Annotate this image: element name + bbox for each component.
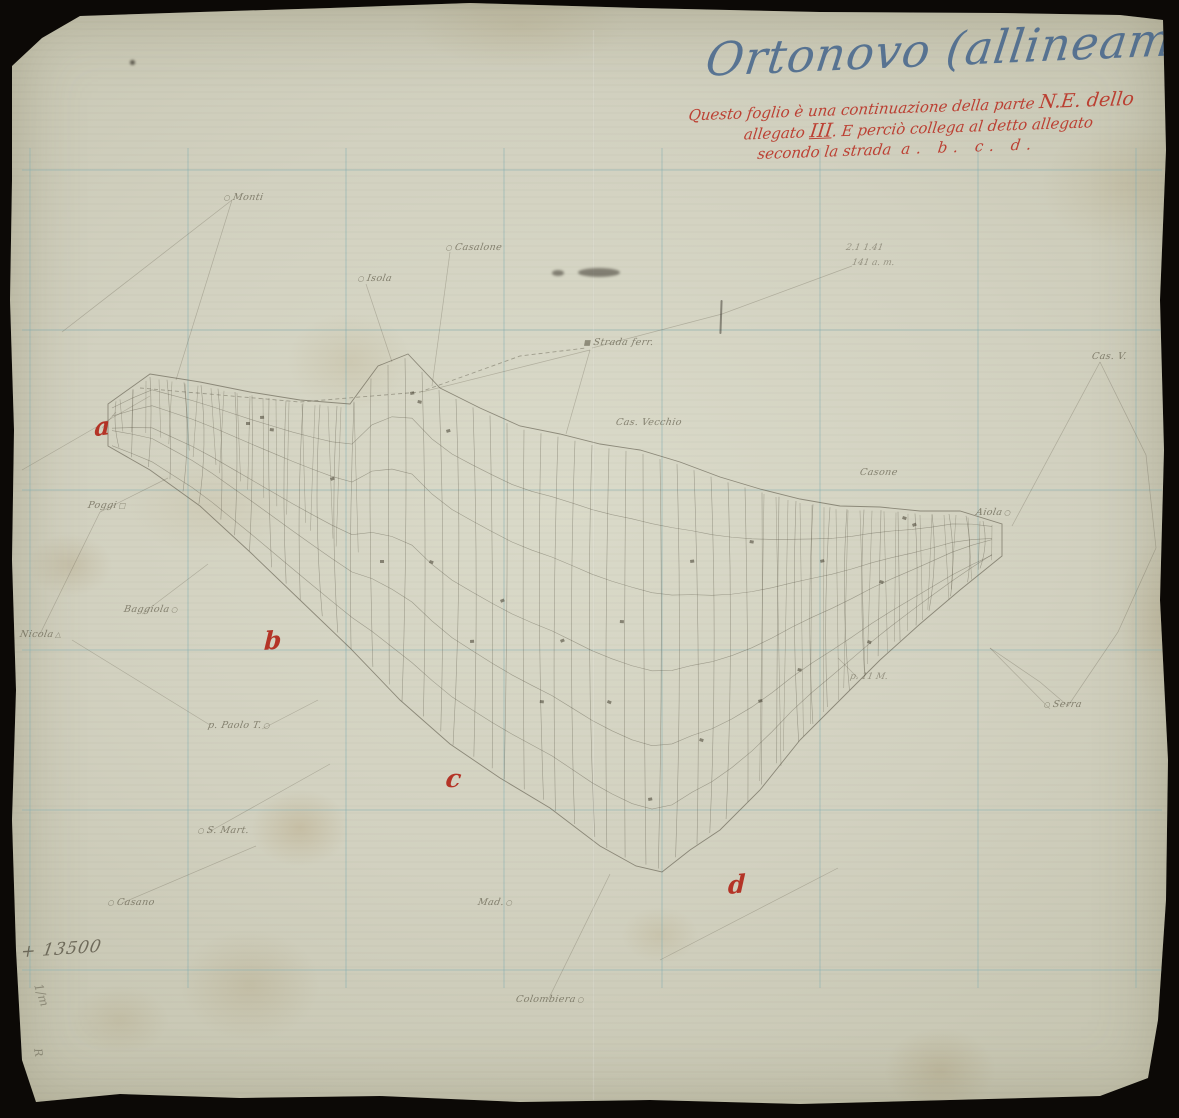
reference-letter-c: c: [444, 764, 463, 793]
place-label: Aiola○: [975, 507, 1014, 518]
map-title: Ortonovo (allineamenti): [703, 7, 1179, 87]
reference-letter-b: b: [263, 625, 282, 656]
scan-background: Ortonovo (allineamenti) Questo foglio è …: [0, 0, 1179, 1118]
pencil-annotation: 2.1 1.41: [845, 243, 884, 253]
ink-smudge: [578, 268, 620, 277]
pencil-annotation: 141 a. m.: [851, 258, 895, 268]
place-label: Nicola△: [19, 629, 65, 640]
place-label-text: p. Paolo T.: [207, 720, 263, 731]
circle-marker-icon: ○: [197, 826, 206, 835]
circle-marker-icon: ○: [171, 605, 180, 614]
place-label: Cas. Vecchio: [615, 417, 683, 428]
parcel-sketch: [0, 0, 1179, 1118]
square-open-marker-icon: □: [118, 501, 127, 510]
circle-marker-icon: ○: [505, 898, 514, 907]
place-label-text: S. Mart.: [206, 825, 250, 836]
place-label: ○Isola: [355, 273, 393, 284]
place-label: ■Strada ferr.: [581, 337, 655, 348]
ink-spot: [130, 60, 135, 65]
place-label: Poggi□: [87, 500, 129, 511]
note-reference-letters: a. b. c. d.: [900, 135, 1038, 158]
circle-marker-icon: ○: [223, 193, 232, 202]
place-label: ○S. Mart.: [195, 825, 250, 836]
pencil-edge-mark: R: [31, 1047, 45, 1057]
note-text-emphasis: N.E. dello: [1038, 88, 1135, 113]
place-label-text: Mad.: [477, 897, 505, 908]
note-text: secondo la strada: [756, 140, 892, 163]
place-label-text: Isola: [366, 273, 393, 284]
place-label-text: Colombiera: [515, 994, 577, 1005]
place-label-text: Poggi: [87, 500, 118, 511]
place-label: ○Casalone: [443, 242, 503, 253]
triangle-marker-icon: △: [55, 630, 63, 639]
map-sheet: Ortonovo (allineamenti) Questo foglio è …: [0, 0, 1179, 1118]
place-label: ○Serra: [1041, 699, 1083, 710]
coordinate-grid: [0, 0, 1179, 1118]
place-label-text: Cas. Vecchio: [615, 417, 683, 428]
paper-crease: [592, 30, 595, 1100]
reference-letter-d: d: [728, 869, 746, 900]
place-label: ○Monti: [221, 192, 264, 203]
annotation-note: Questo foglio è una continuazione della …: [682, 89, 1119, 166]
circle-marker-icon: ○: [263, 721, 272, 730]
circle-marker-icon: ○: [1004, 508, 1013, 517]
place-label: Mad.○: [477, 897, 516, 908]
ink-smudge: [552, 270, 564, 276]
place-label: Colombiera○: [515, 994, 588, 1005]
place-label-text: Strada ferr.: [593, 337, 655, 348]
circle-marker-icon: ○: [577, 995, 586, 1004]
circle-marker-icon: ○: [1043, 700, 1052, 709]
circle-marker-icon: ○: [445, 243, 454, 252]
place-label-text: Casalone: [454, 242, 503, 253]
place-label-text: Monti: [232, 192, 264, 203]
place-label: Baggiola○: [123, 604, 181, 615]
square-marker-icon: ■: [583, 338, 592, 347]
place-label: ○Casano: [105, 897, 156, 908]
place-label-text: Casano: [116, 897, 156, 908]
place-label-text: Serra: [1052, 699, 1083, 710]
pencil-coordinate-note: y + 13500: [2, 936, 103, 963]
place-label-text: Nicola: [19, 629, 54, 640]
place-label-text: Casone: [859, 467, 899, 478]
place-label: Cas. V.: [1091, 351, 1128, 362]
place-label-text: Baggiola: [123, 604, 170, 615]
place-label-text: Aiola: [975, 507, 1003, 518]
paper-crease-mark: [719, 300, 722, 334]
place-label-text: Cas. V.: [1091, 351, 1128, 362]
reference-letter-a: a: [94, 411, 110, 443]
circle-marker-icon: ○: [357, 274, 366, 283]
note-text: allegato: [743, 123, 811, 143]
pencil-edge-mark: 1/m: [31, 982, 51, 1008]
place-label: p. Paolo T.○: [207, 720, 274, 731]
pencil-annotation: p. 11 M.: [849, 672, 889, 682]
circle-marker-icon: ○: [107, 898, 116, 907]
place-label: Casone: [859, 467, 899, 478]
